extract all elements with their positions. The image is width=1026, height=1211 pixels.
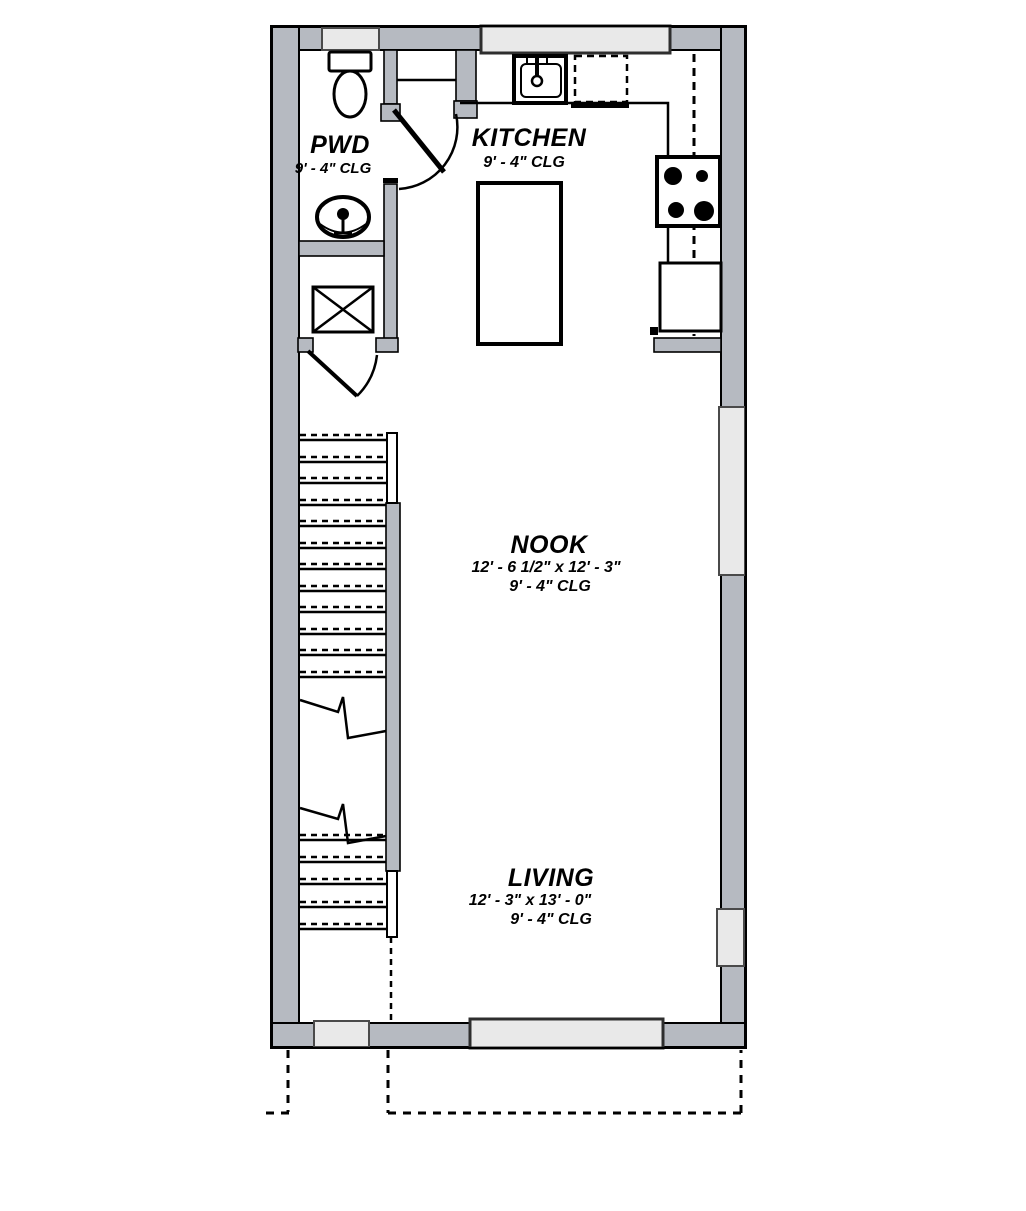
pwd-closet-wall <box>384 184 397 340</box>
entry-door-leaf <box>394 110 444 172</box>
kitchen-sink <box>514 56 566 103</box>
stair-break-line-upper <box>300 697 386 738</box>
nook-dimensions-label: 12' - 6 1/2" x 12' - 3" <box>471 560 620 576</box>
living-room-label: LIVING <box>508 866 594 891</box>
porch-outline <box>266 1050 741 1113</box>
kitchen-room-label: KITCHEN <box>472 126 587 151</box>
closet-door-leaf <box>308 351 357 396</box>
cooktop <box>657 157 720 226</box>
refrigerator-handle <box>650 327 658 335</box>
living-side-window <box>717 909 744 966</box>
stair-nosings-upper <box>300 435 386 672</box>
living-ceiling-label: 9' - 4" CLG <box>510 912 592 928</box>
toilet-bowl <box>334 71 366 117</box>
dishwasher-front <box>571 102 629 108</box>
burner <box>694 201 714 221</box>
nook-room-label: NOOK <box>511 533 588 558</box>
burner <box>696 170 708 182</box>
burner <box>664 167 682 185</box>
refrigerator-outline <box>660 263 721 331</box>
powder-toilet <box>329 52 371 117</box>
floor-plan: PWD 9' - 4" CLG KITCHEN 9' - 4" CLG NOOK… <box>0 0 1026 1211</box>
powder-sink <box>317 197 369 237</box>
pwd-window <box>322 28 379 50</box>
pwd-closet-divider-wall <box>299 241 384 256</box>
kitchen-faucet <box>532 76 542 86</box>
entry-door <box>394 110 457 189</box>
closet-door-jamb-left <box>298 338 313 352</box>
stair-treads-lower <box>300 840 386 929</box>
mechanical-closet <box>313 287 373 332</box>
nook-ceiling-label: 9' - 4" CLG <box>509 579 591 595</box>
burner <box>668 202 684 218</box>
entry-wall-upper <box>384 50 397 104</box>
closet-door-swing-arc <box>357 355 377 396</box>
living-dimensions-label: 12' - 3" x 13' - 0" <box>469 893 591 909</box>
nook-side-window <box>719 407 745 575</box>
living-front-window <box>470 1019 663 1048</box>
door-stop-tick <box>383 178 398 183</box>
closet-door-jamb-right <box>376 338 398 352</box>
closet-door <box>308 351 377 396</box>
toilet-tank <box>329 52 371 71</box>
stair-wall <box>386 503 400 871</box>
entry-wall-right <box>456 50 476 101</box>
porch-outline-main <box>388 1050 741 1113</box>
porch-outline-left <box>266 1050 289 1113</box>
left-wall <box>272 27 299 1047</box>
pwd-ceiling-label: 9' - 4" CLG <box>295 161 372 176</box>
pwd-room-label: PWD <box>310 133 370 158</box>
refrigerator <box>650 263 721 335</box>
stair-window <box>314 1021 369 1047</box>
stair-rail-upper <box>387 433 397 503</box>
floor-plan-drawing <box>0 0 1026 1211</box>
dishwasher-outline <box>575 56 627 102</box>
stair-treads-upper <box>300 440 386 677</box>
kitchen-window <box>481 26 670 53</box>
stair-break-line-lower <box>300 804 386 843</box>
kitchen-stub-wall <box>654 338 721 352</box>
kitchen-ceiling-label: 9' - 4" CLG <box>483 155 565 171</box>
kitchen-island <box>478 183 561 344</box>
stair-rail-lower <box>387 871 397 937</box>
dishwasher <box>571 56 629 108</box>
stair-nosings-lower <box>300 835 386 924</box>
stairs <box>300 433 397 1021</box>
